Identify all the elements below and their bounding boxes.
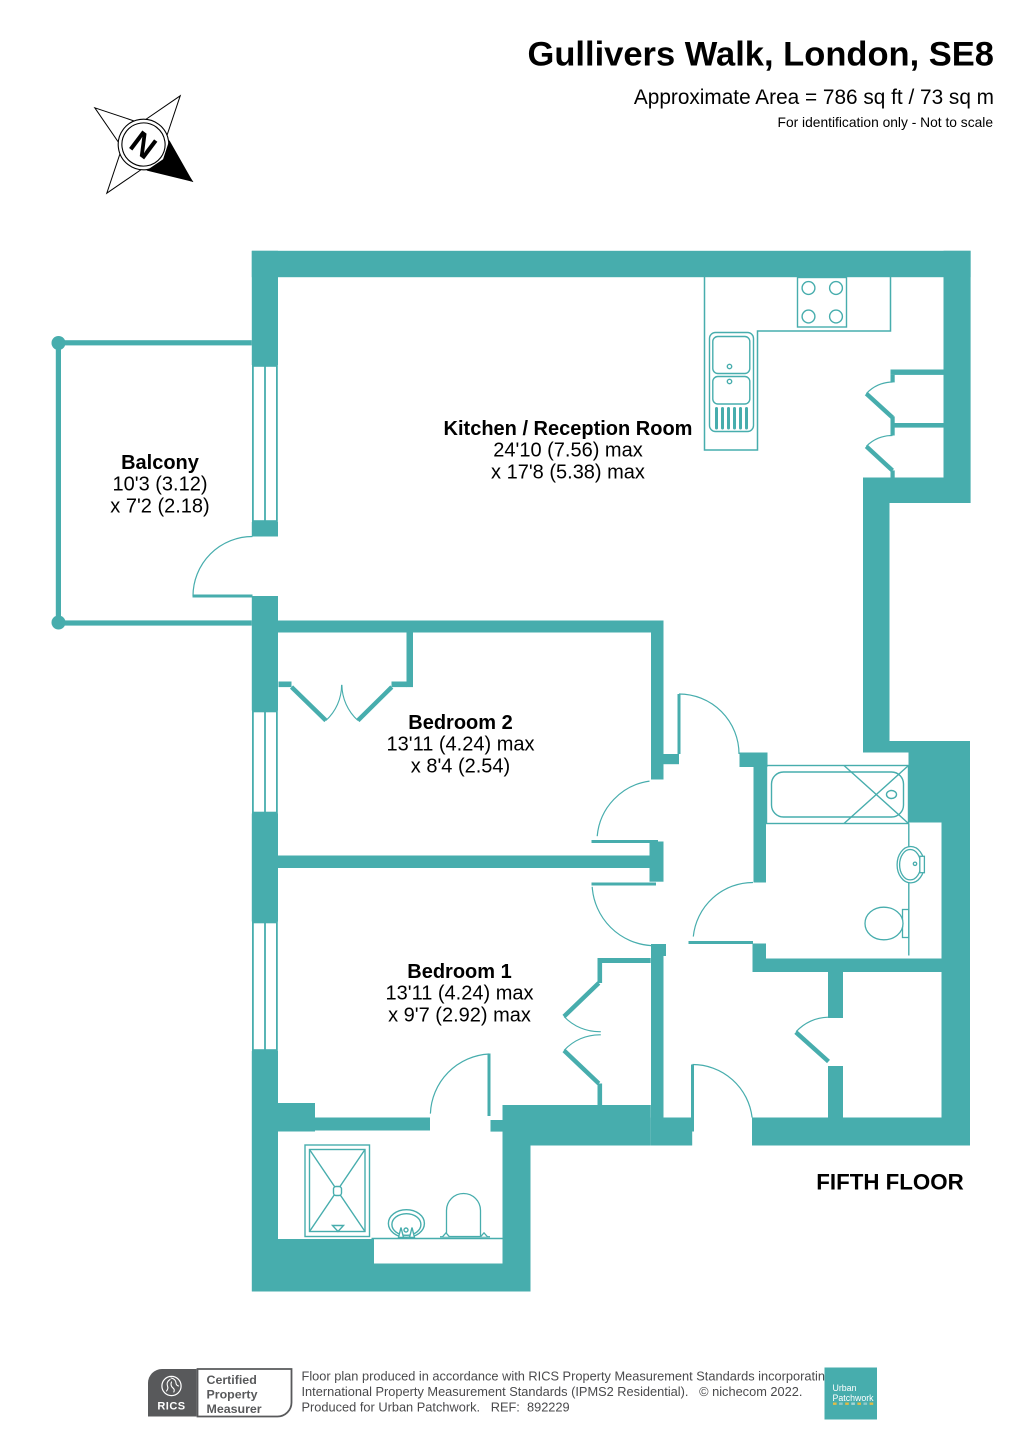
svg-text:x 17'8 (5.38) max: x 17'8 (5.38) max: [491, 461, 645, 483]
svg-text:Urban: Urban: [833, 1383, 857, 1393]
svg-text:Measurer: Measurer: [207, 1402, 262, 1416]
svg-text:10'3 (3.12): 10'3 (3.12): [113, 474, 208, 496]
svg-text:13'11 (4.24) max: 13'11 (4.24) max: [386, 983, 534, 1005]
svg-text:RICS: RICS: [157, 1401, 185, 1413]
svg-text:24'10 (7.56) max: 24'10 (7.56) max: [493, 440, 642, 462]
svg-text:FIFTH FLOOR: FIFTH FLOOR: [816, 1170, 963, 1195]
svg-text:Approximate Area = 786 sq ft /: Approximate Area = 786 sq ft / 73 sq m: [634, 86, 994, 109]
svg-text:Produced for Urban Patchwork.: Produced for Urban Patchwork. REF: 89222…: [302, 1400, 570, 1415]
svg-text:13'11 (4.24) max: 13'11 (4.24) max: [387, 734, 535, 756]
svg-text:Bedroom 1: Bedroom 1: [407, 961, 511, 983]
svg-text:Balcony: Balcony: [121, 452, 200, 474]
svg-text:For identification only - Not: For identification only - Not to scale: [778, 115, 994, 130]
svg-text:Floor plan produced in accorda: Floor plan produced in accordance with R…: [302, 1369, 833, 1384]
svg-text:x 8'4 (2.54): x 8'4 (2.54): [411, 755, 510, 777]
svg-text:x 9'7 (2.92) max: x 9'7 (2.92) max: [388, 1004, 531, 1026]
svg-text:Patchwork: Patchwork: [833, 1393, 875, 1403]
svg-text:Bedroom 2: Bedroom 2: [408, 712, 512, 734]
svg-text:Kitchen / Reception Room: Kitchen / Reception Room: [444, 418, 693, 440]
svg-text:International Property Measure: International Property Measurement Stand…: [302, 1384, 803, 1399]
svg-text:Property: Property: [207, 1388, 258, 1402]
svg-text:Certified: Certified: [207, 1373, 257, 1387]
svg-text:x 7'2 (2.18): x 7'2 (2.18): [110, 495, 209, 517]
svg-text:Gullivers Walk, London, SE8: Gullivers Walk, London, SE8: [528, 36, 994, 74]
